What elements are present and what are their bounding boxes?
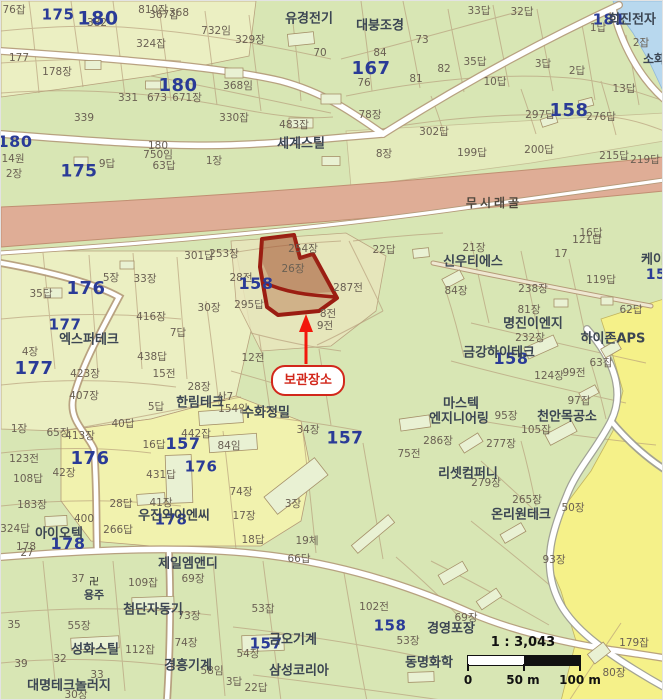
- scale-bar: 1 : 3,043 0 50 m 100 m: [451, 635, 621, 695]
- parcel-number-label: 416장: [136, 312, 166, 323]
- parcel-number-label: 8전: [320, 309, 336, 320]
- parcel-number-label: 53장: [396, 636, 419, 647]
- parcel-number-label: 93장: [542, 555, 565, 566]
- district-number-label: 158: [239, 276, 274, 292]
- district-number-label: 157: [166, 436, 201, 452]
- parcel-number-label: 750임: [143, 150, 173, 161]
- parcel-number-label: 9답: [99, 159, 115, 170]
- parcel-number-label: 22답: [372, 245, 395, 256]
- place-name-label: 천안목공소: [537, 411, 597, 424]
- parcel-number-label: 124장: [534, 371, 564, 382]
- parcel-number-label: 287전: [333, 283, 363, 294]
- district-number-label: 177: [14, 360, 53, 378]
- district-number-label: 175: [42, 8, 75, 23]
- district-number-label: 180: [77, 10, 118, 29]
- parcel-number-label: 35답: [29, 289, 52, 300]
- parcel-number-label: 368: [169, 8, 189, 19]
- place-name-label: 대붕조경: [356, 20, 404, 33]
- parcel-number-label: 28답: [109, 499, 132, 510]
- parcel-number-label: 28장: [187, 382, 210, 393]
- parcel-number-label: 2답: [569, 66, 585, 77]
- parcel-number-label: 17: [554, 249, 567, 260]
- parcel-number-label: 39: [14, 659, 27, 670]
- parcel-number-label: 423장: [70, 369, 100, 380]
- place-name-label: 소화: [643, 53, 663, 65]
- parcel-number-label: 108답: [13, 474, 43, 485]
- parcel-number-label: 4장: [22, 347, 38, 358]
- parcel-number-label: 18답: [241, 535, 264, 546]
- parcel-number-label: 27: [20, 548, 33, 559]
- parcel-number-label: 8장: [376, 149, 392, 160]
- parcel-number-label: 15전: [152, 369, 175, 380]
- parcel-number-label: 254장: [288, 244, 318, 255]
- place-name-label: 성화스틸: [71, 644, 119, 657]
- district-number-label: 176: [185, 460, 218, 475]
- parcel-number-label: 179잡: [619, 638, 649, 649]
- district-number-label: 175: [61, 164, 98, 181]
- place-name-label: 세계스틸: [277, 138, 325, 151]
- parcel-number-label: 30장: [197, 303, 220, 314]
- parcel-number-label: 32: [53, 654, 66, 665]
- place-name-label: 하이존APS: [581, 333, 646, 346]
- parcel-number-label: 22답: [244, 683, 267, 694]
- place-name-label: 케이: [641, 254, 663, 267]
- district-number-label: 157: [327, 431, 364, 448]
- scale-label-0: 0: [464, 673, 472, 687]
- parcel-number-label: 1장: [206, 156, 222, 167]
- parcel-number-label: 81장: [517, 305, 540, 316]
- place-name-label: 한림테크: [176, 397, 224, 410]
- scale-tick-0: [467, 664, 469, 671]
- parcel-number-label: 17장: [232, 511, 255, 522]
- place-name-label: 아이오텍: [35, 528, 83, 541]
- scale-label-100: 100 m: [559, 673, 601, 687]
- parcel-number-label: 14원: [1, 154, 24, 165]
- parcel-number-label: 50장: [561, 503, 584, 514]
- parcel-number-label: 413장: [65, 431, 95, 442]
- parcel-number-label: 33장: [133, 274, 156, 285]
- parcel-number-label: 266답: [103, 525, 133, 536]
- parcel-number-label: 95장: [494, 411, 517, 422]
- parcel-number-label: 119답: [586, 275, 616, 286]
- place-name-label: 마스텍: [443, 398, 479, 411]
- place-name-label: 희진전자: [608, 14, 656, 27]
- place-name-label: 엑스퍼테크: [59, 334, 119, 347]
- parcel-number-label: 331: [118, 93, 138, 104]
- scale-tick-100: [579, 664, 581, 671]
- district-number-label: 180: [0, 134, 32, 150]
- parcel-number-label: 123전: [9, 454, 39, 465]
- parcel-number-label: 295답: [234, 300, 264, 311]
- parcel-number-label: 81: [409, 74, 422, 85]
- parcel-number-label: 324잡: [136, 39, 166, 50]
- map-canvas[interactable]: 76잡382810장367잡368732임329장324잡70177178장33…: [0, 0, 663, 700]
- scale-tick-50: [523, 664, 525, 671]
- parcel-number-label: 178장: [42, 67, 72, 78]
- parcel-number-label: 339: [74, 113, 94, 124]
- parcel-number-label: 3답: [535, 59, 551, 70]
- parcel-number-label: 302답: [419, 127, 449, 138]
- parcel-number-label: 400: [74, 514, 94, 525]
- district-number-label: 167: [351, 60, 390, 78]
- parcel-number-label: 40답: [111, 419, 134, 430]
- parcel-number-label: 276답: [586, 112, 616, 123]
- parcel-number-label: 19체: [295, 536, 318, 547]
- parcel-number-label: 35: [7, 620, 20, 631]
- district-number-label: 176: [66, 280, 105, 298]
- parcel-number-label: 483잡: [279, 120, 309, 131]
- district-number-label: 158: [549, 102, 588, 120]
- parcel-number-label: 41장: [149, 498, 172, 509]
- parcel-number-label: 69장: [181, 574, 204, 585]
- parcel-number-label: 5답: [148, 402, 164, 413]
- place-name-label: 용주: [84, 590, 104, 601]
- temple-icon: 卍: [89, 578, 99, 588]
- parcel-number-label: 32답: [510, 7, 533, 18]
- parcel-number-label: 7답: [170, 328, 186, 339]
- place-name-label: 동명화학: [405, 657, 453, 670]
- parcel-number-label: 368임: [223, 81, 253, 92]
- scale-ratio-label: 1 : 3,043: [467, 635, 579, 650]
- parcel-number-label: 329장: [235, 35, 265, 46]
- parcel-number-label: 112잡: [125, 645, 155, 656]
- map-labels-layer: 76잡382810장367잡368732임329장324잡70177178장33…: [1, 1, 662, 699]
- place-name-label: 금오기계: [269, 634, 317, 647]
- parcel-number-label: 74장: [229, 487, 252, 498]
- parcel-number-label: 34장: [296, 425, 319, 436]
- place-name-label: 우진와이엔씨: [138, 510, 210, 523]
- parcel-number-label: 2장: [6, 169, 22, 180]
- parcel-number-label: 324답: [0, 524, 30, 535]
- place-name-label: 수화정밀: [242, 407, 290, 420]
- parcel-number-label: 109잡: [128, 578, 158, 589]
- place-name-label: 엔지니어링: [429, 413, 489, 426]
- parcel-number-label: 219답: [630, 155, 660, 166]
- parcel-number-label: 3답: [226, 677, 242, 688]
- parcel-number-label: 63잡: [589, 358, 612, 369]
- storage-location-label: 보관장소: [284, 373, 332, 388]
- parcel-number-label: 330잡: [219, 113, 249, 124]
- place-name-label: 대명테크놀러지: [27, 680, 111, 693]
- parcel-number-label: 84장: [444, 286, 467, 297]
- parcel-number-label: 99전: [562, 368, 585, 379]
- parcel-number-label: 62답: [619, 305, 642, 316]
- parcel-number-label: 438답: [137, 352, 167, 363]
- parcel-number-label: 407장: [69, 391, 99, 402]
- place-name-label: 유경전기: [285, 13, 333, 26]
- parcel-number-label: 232장: [515, 333, 545, 344]
- storage-location-callout: 보관장소: [271, 365, 345, 396]
- parcel-number-label: 177: [9, 53, 29, 64]
- parcel-number-label: 97잡: [567, 396, 590, 407]
- parcel-number-label: 265장: [512, 495, 542, 506]
- parcel-number-label: 70: [313, 48, 326, 59]
- parcel-number-label: 63답: [152, 161, 175, 172]
- parcel-number-label: 102전: [359, 602, 389, 613]
- district-number-label: 158: [374, 619, 407, 634]
- district-number-label: 176: [70, 450, 109, 468]
- scale-label-50: 50 m: [506, 673, 539, 687]
- parcel-number-label: 199답: [457, 148, 487, 159]
- place-name-label: 제일엠앤디: [158, 558, 218, 571]
- parcel-number-label: 84임: [217, 441, 240, 452]
- place-name-label: 금강하이테크: [463, 347, 535, 360]
- place-name-label: 온리원테크: [491, 509, 551, 522]
- parcel-number-label: 732임: [201, 26, 231, 37]
- parcel-number-label: 12전: [241, 353, 264, 364]
- parcel-number-label: 2잡: [633, 38, 649, 49]
- parcel-number-label: 33답: [467, 6, 490, 17]
- parcel-number-label: 75전: [397, 449, 420, 460]
- parcel-number-label: 253장: [209, 249, 239, 260]
- parcel-number-label: 9전: [317, 321, 333, 332]
- parcel-number-label: 13답: [612, 84, 635, 95]
- parcel-number-label: 76: [357, 78, 370, 89]
- parcel-number-label: 66답: [287, 554, 310, 565]
- parcel-number-label: 10답: [483, 77, 506, 88]
- parcel-number-label: 183장: [17, 500, 47, 511]
- place-name-label: 명진이엔지: [503, 318, 563, 331]
- scale-bar-black-segment: [524, 656, 580, 665]
- place-name-label: 삼성코리아: [269, 665, 329, 678]
- parcel-number-label: 286장: [423, 436, 453, 447]
- parcel-number-label: 21장: [462, 243, 485, 254]
- parcel-number-label: 26장: [281, 264, 304, 275]
- road-name-label: 무시래골: [466, 197, 522, 209]
- parcel-number-label: 200답: [524, 145, 554, 156]
- parcel-number-label: 42장: [52, 468, 75, 479]
- place-name-label: 리셋컴퍼니: [438, 468, 498, 481]
- parcel-number-label: 3장: [285, 499, 301, 510]
- parcel-number-label: 16답: [142, 440, 165, 451]
- parcel-number-label: 16답: [579, 228, 602, 239]
- place-name-label: 경흥기계: [164, 660, 212, 673]
- district-number-label: 15: [646, 268, 663, 282]
- district-number-label: 177: [49, 318, 82, 333]
- parcel-number-label: 1장: [11, 424, 27, 435]
- parcel-number-label: 35답: [463, 57, 486, 68]
- parcel-number-label: 74장: [174, 638, 197, 649]
- place-name-label: 경영포장: [427, 623, 475, 636]
- parcel-number-label: 76잡: [2, 5, 25, 16]
- parcel-number-label: 37: [71, 574, 84, 585]
- parcel-number-label: 105잡: [521, 425, 551, 436]
- district-number-label: 180: [158, 77, 197, 95]
- parcel-number-label: 431답: [146, 470, 176, 481]
- parcel-number-label: 82: [437, 64, 450, 75]
- place-name-label: 첨단자동기: [123, 604, 183, 617]
- parcel-number-label: 277장: [486, 439, 516, 450]
- parcel-number-label: 78장: [358, 110, 381, 121]
- parcel-number-label: 238장: [518, 284, 548, 295]
- parcel-number-label: 55장: [67, 621, 90, 632]
- parcel-number-label: 84: [373, 48, 386, 59]
- parcel-number-label: 53잡: [251, 604, 274, 615]
- parcel-number-label: 73: [415, 35, 428, 46]
- parcel-number-label: 215답: [599, 151, 629, 162]
- place-name-label: 신우티에스: [443, 256, 503, 269]
